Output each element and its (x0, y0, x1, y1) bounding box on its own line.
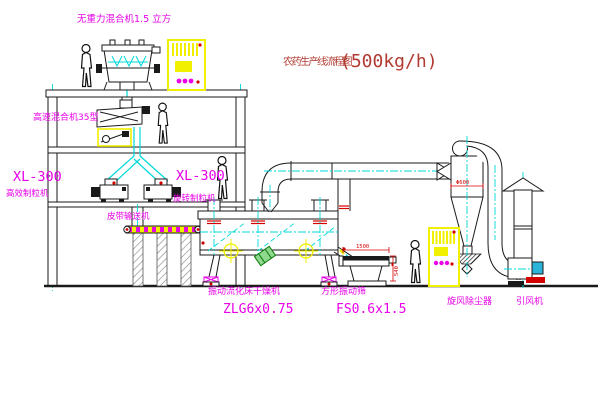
knob-icon (183, 79, 188, 84)
granulator-model-left-label: XL-300 (13, 169, 62, 185)
control-cabinet-bottom (429, 228, 459, 286)
fan-label: 引风机 (516, 295, 543, 307)
granulator-name-left-label: 高效制粒机 (6, 188, 49, 199)
knob-icon (445, 261, 449, 265)
dryer-label: 振动流化床干燥机 (208, 285, 280, 297)
knob-icon (434, 261, 438, 265)
dryer-model-label: ZLG6x0.75 (223, 302, 293, 317)
high-speed-mixer-label: 高速混合机35型 (33, 111, 98, 123)
sieve-height-dim: 540 (394, 266, 400, 276)
indicator-light-icon (196, 80, 199, 83)
granulator-name-center-label: 旋转制粒机 (173, 193, 216, 204)
sieve-length-dim: 1500 (356, 244, 369, 250)
knob-icon (177, 79, 182, 84)
sieve-model-label: FS0.6x1.5 (336, 302, 406, 317)
fan-motor-icon (532, 262, 543, 274)
cyclone-label: 旋风除尘器 (447, 295, 492, 307)
diagram-canvas: 无重力混合机1.5 立方 农药生产线流程图 (500kg/h) 高速混合机35型… (0, 0, 600, 403)
control-cabinet-top (168, 40, 205, 90)
belt-conveyor-label: 皮带输送机 (107, 211, 150, 222)
indicator-light-icon (198, 43, 201, 46)
flow-diagram-page: 无重力混合机1.5 立方 农药生产线流程图 (500kg/h) 高速混合机35型… (0, 0, 600, 403)
diagram-title-capacity: (500kg/h) (340, 51, 438, 72)
knob-icon (189, 79, 194, 84)
granulator-model-center-label: XL-300 (176, 168, 225, 184)
indicator-light-icon (452, 230, 455, 233)
knob-icon (439, 261, 443, 265)
weightless-mixer-label: 无重力混合机1.5 立方 (77, 13, 171, 25)
sieve-label: 方形振动筛 (321, 285, 366, 297)
indicator-light-icon (450, 262, 453, 265)
cyclone-diameter-dim: Φ600 (456, 180, 469, 186)
